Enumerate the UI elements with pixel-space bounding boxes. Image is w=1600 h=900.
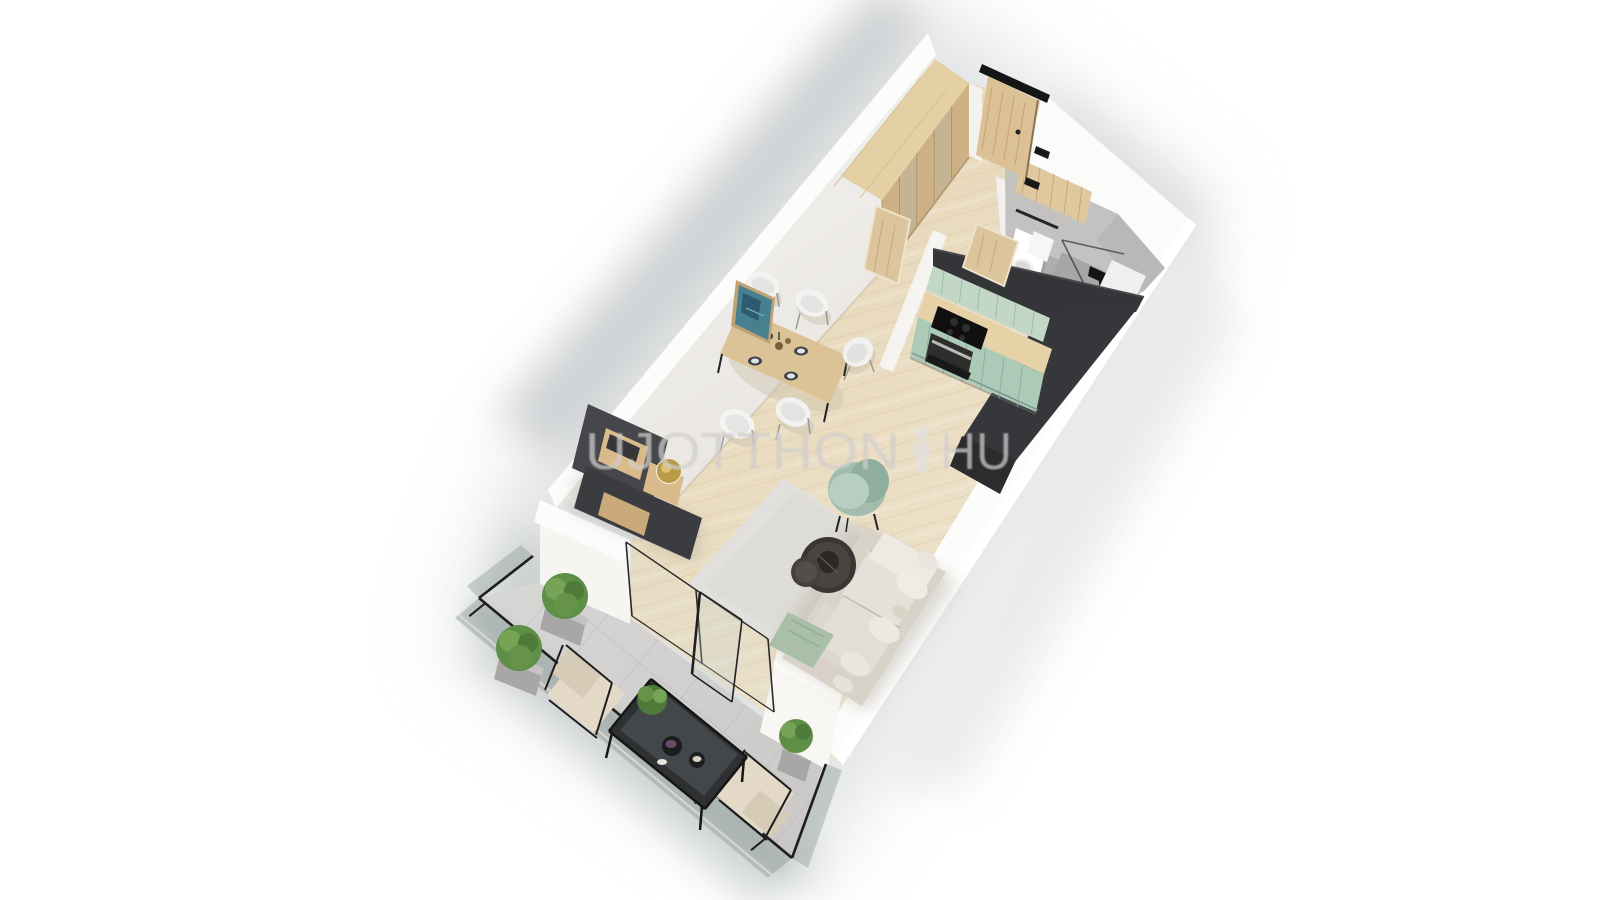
svg-text:HU: HU (940, 423, 1012, 481)
svg-text:UJOTTHON: UJOTTHON (585, 423, 900, 481)
